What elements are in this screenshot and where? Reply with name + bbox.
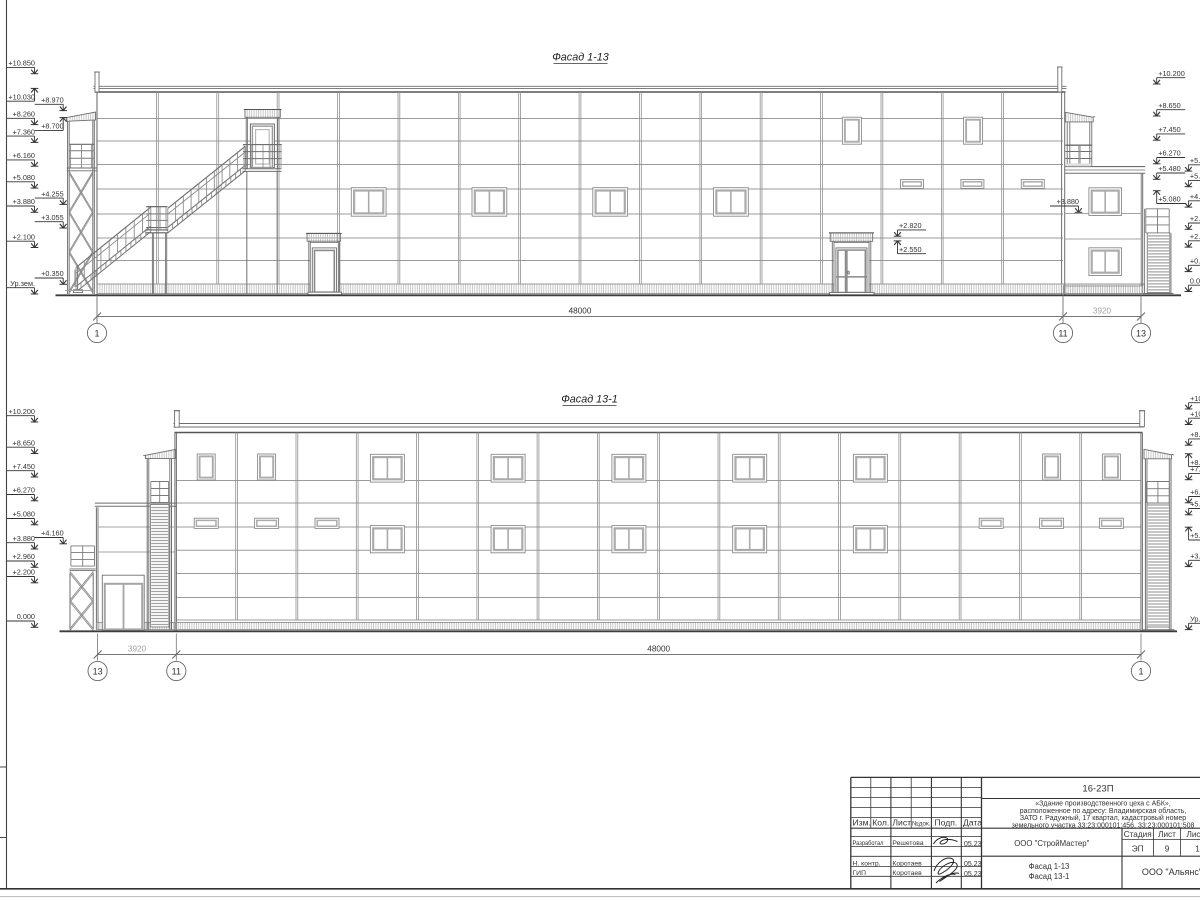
- svg-text:Решетова: Решетова: [892, 840, 923, 847]
- svg-text:Фасад 1-13: Фасад 1-13: [1029, 862, 1070, 871]
- svg-text:Изм.: Изм.: [853, 818, 871, 828]
- svg-text:+3.880: +3.880: [1056, 197, 1079, 206]
- svg-text:05.23: 05.23: [964, 841, 982, 848]
- svg-text:13: 13: [93, 666, 103, 676]
- svg-text:+3.880: +3.880: [12, 197, 35, 206]
- svg-text:+5.080: +5.080: [12, 510, 35, 519]
- svg-text:расположенное по адресу: Влади: расположенное по адресу: Владимирская об…: [1020, 807, 1187, 815]
- svg-text:+6.160: +6.160: [12, 151, 35, 160]
- svg-text:+3.880: +3.880: [12, 534, 35, 543]
- svg-text:Дата: Дата: [963, 818, 982, 828]
- svg-text:1: 1: [1138, 666, 1143, 676]
- svg-text:Фасад 1-13: Фасад 1-13: [552, 52, 609, 64]
- svg-text:+8.650: +8.650: [12, 438, 35, 447]
- svg-text:+10.850: +10.850: [1190, 394, 1200, 403]
- svg-text:+7.360: +7.360: [12, 127, 35, 136]
- svg-text:+3.055: +3.055: [41, 213, 64, 222]
- svg-text:48000: 48000: [569, 307, 592, 316]
- svg-text:«Здание производственного цеха: «Здание производственного цеха с АБК»,: [1035, 801, 1171, 808]
- svg-text:ЗАТО г. Радужный, 17 квартал,: ЗАТО г. Радужный, 17 квартал, кадастровы…: [1020, 814, 1186, 822]
- svg-text:ООО "Альянс": ООО "Альянс": [1142, 867, 1200, 877]
- svg-text:№док.: №док.: [912, 820, 931, 827]
- svg-text:+7.450: +7.450: [1190, 465, 1200, 474]
- svg-text:+4.160: +4.160: [41, 529, 64, 538]
- svg-text:+6.270: +6.270: [12, 486, 35, 495]
- svg-text:+4.160: +4.160: [1190, 192, 1200, 201]
- svg-text:+10.030: +10.030: [8, 92, 35, 101]
- svg-text:Н. контр.: Н. контр.: [853, 860, 881, 867]
- svg-text:Фасад 13-1: Фасад 13-1: [561, 394, 618, 406]
- svg-text:Подп.: Подп.: [935, 818, 958, 828]
- svg-text:+8.970: +8.970: [41, 96, 64, 105]
- svg-text:+2.820: +2.820: [899, 221, 922, 230]
- svg-text:+5.080: +5.080: [1190, 531, 1200, 540]
- svg-text:3920: 3920: [128, 645, 147, 654]
- svg-text:+10.200: +10.200: [8, 407, 35, 416]
- svg-text:+0.350: +0.350: [41, 269, 64, 278]
- svg-text:Ур.зем.: Ур.зем.: [1190, 615, 1200, 624]
- svg-text:+8.700: +8.700: [41, 122, 64, 131]
- svg-text:+2.960: +2.960: [1190, 214, 1200, 223]
- svg-text:+7.450: +7.450: [12, 462, 35, 471]
- svg-text:+2.200: +2.200: [1190, 232, 1200, 241]
- svg-text:Кол.: Кол.: [872, 818, 889, 828]
- svg-text:13: 13: [1136, 328, 1146, 338]
- svg-text:+5.480: +5.480: [1158, 164, 1181, 173]
- svg-text:1: 1: [94, 328, 99, 338]
- svg-text:Лист: Лист: [1158, 830, 1176, 839]
- svg-text:+5.080: +5.080: [1190, 172, 1200, 181]
- svg-text:Лист: Лист: [892, 818, 911, 828]
- svg-text:+8.260: +8.260: [12, 110, 35, 119]
- svg-text:+2.550: +2.550: [899, 245, 922, 254]
- svg-text:0.000: 0.000: [1190, 276, 1200, 285]
- svg-text:3920: 3920: [1093, 307, 1112, 316]
- svg-text:9: 9: [1165, 845, 1170, 854]
- svg-text:земельного участка 33:23:00010: земельного участка 33:23:000101:456, 33:…: [1012, 822, 1195, 829]
- svg-text:Стадия: Стадия: [1124, 830, 1152, 839]
- svg-text:+5.080: +5.080: [1158, 195, 1181, 204]
- svg-text:+6.270: +6.270: [1158, 149, 1181, 158]
- svg-text:11: 11: [172, 666, 181, 676]
- svg-text:+2.200: +2.200: [12, 568, 35, 577]
- svg-text:48000: 48000: [647, 645, 670, 654]
- svg-text:05.23: 05.23: [964, 871, 982, 878]
- svg-text:+3.055: +3.055: [1190, 552, 1200, 561]
- svg-text:ЭП: ЭП: [1132, 845, 1144, 854]
- svg-text:Коротаев: Коротаев: [892, 870, 922, 877]
- svg-text:+6.270: +6.270: [1190, 488, 1200, 497]
- svg-text:+8.970: +8.970: [1190, 430, 1200, 439]
- svg-text:+5.480: +5.480: [1190, 500, 1200, 509]
- svg-text:0.000: 0.000: [17, 612, 35, 621]
- svg-text:+2.100: +2.100: [12, 232, 35, 241]
- svg-text:16-23П: 16-23П: [1082, 784, 1113, 795]
- svg-text:Лис: Лис: [1186, 830, 1200, 839]
- svg-text:1: 1: [1195, 845, 1200, 854]
- svg-text:+10.200: +10.200: [1190, 409, 1200, 418]
- svg-text:+5.480: +5.480: [1190, 156, 1200, 165]
- svg-text:+0.350: +0.350: [1190, 257, 1200, 266]
- svg-text:+4.255: +4.255: [41, 189, 64, 198]
- svg-text:05.23: 05.23: [964, 861, 982, 868]
- svg-text:+10.850: +10.850: [8, 59, 35, 68]
- svg-text:+5.080: +5.080: [12, 173, 35, 182]
- svg-text:+2.960: +2.960: [12, 552, 35, 561]
- svg-text:Коротаев: Коротаев: [892, 860, 922, 867]
- svg-text:Разработал: Разработал: [853, 839, 884, 847]
- svg-text:+8.650: +8.650: [1158, 101, 1181, 110]
- svg-text:+7.450: +7.450: [1158, 125, 1181, 134]
- svg-text:ГИП: ГИП: [853, 870, 867, 877]
- svg-text:11: 11: [1058, 328, 1067, 338]
- svg-text:+10.200: +10.200: [1158, 69, 1185, 78]
- svg-text:Фасад 13-1: Фасад 13-1: [1029, 872, 1070, 881]
- svg-text:ООО "СтройМастер": ООО "СтройМастер": [1014, 839, 1089, 848]
- svg-text:Ур.зем.: Ур.зем.: [10, 279, 35, 288]
